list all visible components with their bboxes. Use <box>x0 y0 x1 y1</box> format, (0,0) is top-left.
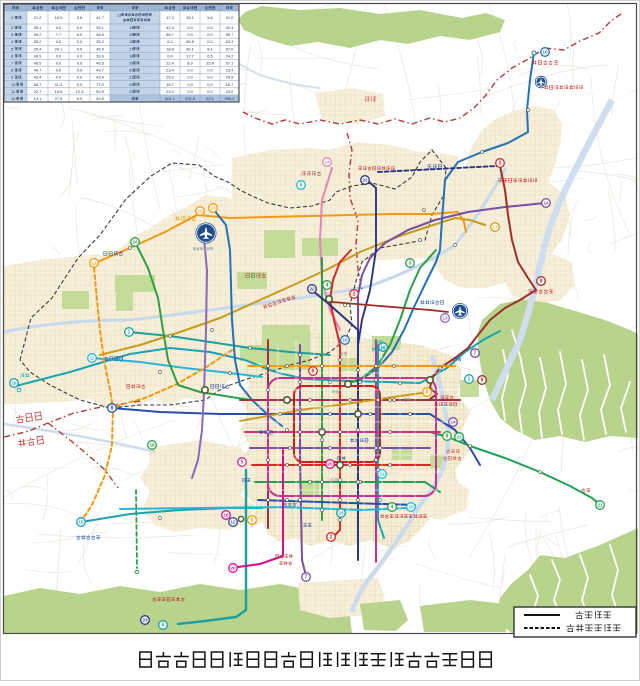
svg-text:17.3: 17.3 <box>166 15 175 20</box>
svg-text:23.0: 23.0 <box>166 89 175 94</box>
svg-text:12: 12 <box>11 96 16 101</box>
svg-text:0.0: 0.0 <box>167 53 173 58</box>
svg-text:35.1: 35.1 <box>96 25 105 30</box>
svg-text:24.2: 24.2 <box>226 53 235 58</box>
svg-text:6: 6 <box>300 183 303 189</box>
svg-text:42.4: 42.4 <box>166 25 175 30</box>
svg-text:12: 12 <box>91 261 97 266</box>
svg-text:14: 14 <box>450 420 456 425</box>
svg-text:49.7: 49.7 <box>34 68 43 73</box>
svg-text:5: 5 <box>241 460 244 466</box>
svg-text:0.0: 0.0 <box>187 89 193 94</box>
svg-text:22.4: 22.4 <box>166 61 175 66</box>
svg-text:43.4: 43.4 <box>96 75 105 80</box>
svg-text:10: 10 <box>342 338 348 343</box>
svg-text:13: 13 <box>442 316 448 321</box>
svg-text:5.6: 5.6 <box>207 15 213 20</box>
svg-text:39.9: 39.9 <box>96 53 105 58</box>
svg-text:1: 1 <box>468 377 471 383</box>
svg-text:16: 16 <box>132 240 138 245</box>
svg-text:15: 15 <box>408 505 414 510</box>
svg-text:0.0: 0.0 <box>56 75 62 80</box>
svg-text:15: 15 <box>78 520 84 525</box>
svg-text:0.0: 0.0 <box>56 53 62 58</box>
svg-text:45.5: 45.5 <box>96 46 105 51</box>
svg-text:18.1: 18.1 <box>186 15 195 20</box>
svg-text:46.5: 46.5 <box>96 61 105 66</box>
svg-text:0.0: 0.0 <box>207 32 213 37</box>
svg-text:46.9: 46.9 <box>96 32 105 37</box>
svg-text:39.2: 39.2 <box>34 32 43 37</box>
svg-text:3: 3 <box>499 161 502 167</box>
svg-text:0.0: 0.0 <box>207 75 213 80</box>
svg-text:1: 1 <box>128 330 131 336</box>
svg-text:0.0: 0.0 <box>207 68 213 73</box>
svg-text:21: 21 <box>456 435 462 440</box>
svg-text:12.3: 12.3 <box>76 89 85 94</box>
svg-text:4: 4 <box>326 283 329 289</box>
svg-text:601.1: 601.1 <box>165 96 176 101</box>
svg-text:41.0: 41.0 <box>226 15 235 20</box>
svg-text:35.2: 35.2 <box>34 39 43 44</box>
svg-text:17: 17 <box>492 225 498 230</box>
svg-text:3: 3 <box>409 261 412 267</box>
svg-text:46.5: 46.5 <box>34 61 43 66</box>
svg-text:19: 19 <box>11 381 17 386</box>
svg-text:23: 23 <box>142 618 148 623</box>
svg-text:43.4: 43.4 <box>34 75 43 80</box>
svg-text:8.1: 8.1 <box>207 46 213 51</box>
svg-text:2: 2 <box>330 535 333 541</box>
svg-text:35.1: 35.1 <box>34 25 43 30</box>
svg-text:8.9: 8.9 <box>187 61 193 66</box>
svg-text:0.0: 0.0 <box>56 61 62 66</box>
svg-text:20.1: 20.1 <box>55 46 64 51</box>
svg-text:62.1: 62.1 <box>206 96 215 101</box>
svg-text:0.0: 0.0 <box>56 39 62 44</box>
svg-text:0.0: 0.0 <box>207 39 213 44</box>
svg-text:56.8: 56.8 <box>186 39 195 44</box>
svg-text:15.5: 15.5 <box>55 89 64 94</box>
svg-text:6.4: 6.4 <box>167 39 173 44</box>
svg-text:3.6: 3.6 <box>77 15 83 20</box>
svg-text:11.3: 11.3 <box>55 82 63 87</box>
svg-text:0.0: 0.0 <box>77 96 83 101</box>
svg-text:9: 9 <box>540 279 543 285</box>
svg-text:13: 13 <box>117 14 121 18</box>
svg-text:0.0: 0.0 <box>187 68 193 73</box>
svg-text:0.0: 0.0 <box>187 32 193 37</box>
svg-text:12: 12 <box>197 209 203 214</box>
svg-text:0.0: 0.0 <box>207 25 213 30</box>
svg-text:40.9: 40.9 <box>96 96 105 101</box>
svg-text:25.4: 25.4 <box>34 46 43 51</box>
svg-text:0.0: 0.0 <box>77 53 83 58</box>
svg-text:18.7: 18.7 <box>166 82 175 87</box>
svg-text:14: 14 <box>543 201 549 206</box>
svg-text:23.0: 23.0 <box>226 89 235 94</box>
svg-text:18.7: 18.7 <box>226 82 235 87</box>
svg-text:0.0: 0.0 <box>77 32 83 37</box>
svg-text:21: 21 <box>597 503 603 508</box>
svg-text:10: 10 <box>542 50 548 55</box>
svg-text:7.7: 7.7 <box>56 32 62 37</box>
svg-text:18: 18 <box>149 443 155 448</box>
svg-text:7: 7 <box>474 351 477 357</box>
svg-text:996.0: 996.0 <box>224 96 235 101</box>
svg-text:332.8: 332.8 <box>185 96 196 101</box>
svg-text:0.0: 0.0 <box>207 82 213 87</box>
svg-text:8: 8 <box>111 406 114 412</box>
svg-text:11: 11 <box>380 472 385 477</box>
svg-text:0.0: 0.0 <box>187 25 193 30</box>
svg-text:0.0: 0.0 <box>77 61 83 66</box>
svg-text:0.0: 0.0 <box>77 46 83 51</box>
svg-text:6: 6 <box>162 623 165 629</box>
svg-text:23: 23 <box>338 511 344 516</box>
svg-text:42.4: 42.4 <box>226 25 235 30</box>
svg-text:25.8: 25.8 <box>206 61 215 66</box>
svg-text:8: 8 <box>426 390 429 396</box>
svg-text:17.7: 17.7 <box>186 53 195 58</box>
svg-text:0.0: 0.0 <box>77 82 83 87</box>
svg-text:41.7: 41.7 <box>96 15 105 20</box>
svg-text:11: 11 <box>90 356 95 361</box>
svg-text:63.3: 63.3 <box>226 39 235 44</box>
svg-text:18.8: 18.8 <box>166 46 175 51</box>
svg-text:0.0: 0.0 <box>77 25 83 30</box>
svg-text:23.4: 23.4 <box>226 68 235 73</box>
svg-text:8: 8 <box>446 434 449 440</box>
svg-text:57.1: 57.1 <box>226 61 235 66</box>
svg-text:22: 22 <box>309 287 315 292</box>
svg-text:55.7: 55.7 <box>226 32 235 37</box>
svg-text:4: 4 <box>391 505 394 511</box>
svg-text:8: 8 <box>312 369 315 375</box>
svg-text:20: 20 <box>327 462 333 467</box>
svg-text:49.7: 49.7 <box>96 68 105 73</box>
svg-text:21.2: 21.2 <box>34 15 43 20</box>
svg-text:10: 10 <box>11 82 16 87</box>
svg-text:9: 9 <box>481 378 484 384</box>
svg-text:23.4: 23.4 <box>166 68 175 73</box>
svg-text:55.7: 55.7 <box>166 32 175 37</box>
svg-text:50.5: 50.5 <box>96 89 105 94</box>
svg-text:13: 13 <box>210 206 216 211</box>
svg-text:57.0: 57.0 <box>226 46 235 51</box>
svg-text:2: 2 <box>353 292 356 298</box>
svg-text:22: 22 <box>362 178 368 183</box>
svg-text:0.0: 0.0 <box>207 89 213 94</box>
svg-text:22.7: 22.7 <box>34 89 43 94</box>
svg-text:0.0: 0.0 <box>56 68 62 73</box>
svg-text:35.2: 35.2 <box>96 39 105 44</box>
svg-text:12: 12 <box>230 520 236 525</box>
svg-text:77.0: 77.0 <box>96 82 105 87</box>
svg-text:39.9: 39.9 <box>34 53 43 58</box>
svg-text:30.1: 30.1 <box>186 46 195 51</box>
svg-text:0.0: 0.0 <box>187 82 193 87</box>
svg-text:25.9: 25.9 <box>166 75 175 80</box>
svg-text:27.6: 27.6 <box>55 96 64 101</box>
svg-text:0.0: 0.0 <box>77 39 83 44</box>
svg-text:20: 20 <box>230 566 236 571</box>
svg-text:7: 7 <box>305 575 308 581</box>
svg-text:6: 6 <box>251 518 254 524</box>
svg-text:65.7: 65.7 <box>34 82 43 87</box>
svg-text:0.0: 0.0 <box>187 75 193 80</box>
svg-text:16.9: 16.9 <box>55 15 64 20</box>
svg-text:0.0: 0.0 <box>77 68 83 73</box>
svg-text:25.9: 25.9 <box>226 75 235 80</box>
svg-text:16: 16 <box>223 513 229 518</box>
svg-text:13.1: 13.1 <box>34 96 43 101</box>
svg-text:14: 14 <box>324 160 330 165</box>
svg-text:6.5: 6.5 <box>207 53 213 58</box>
svg-text:0.0: 0.0 <box>56 25 62 30</box>
svg-text:0.0: 0.0 <box>77 75 83 80</box>
